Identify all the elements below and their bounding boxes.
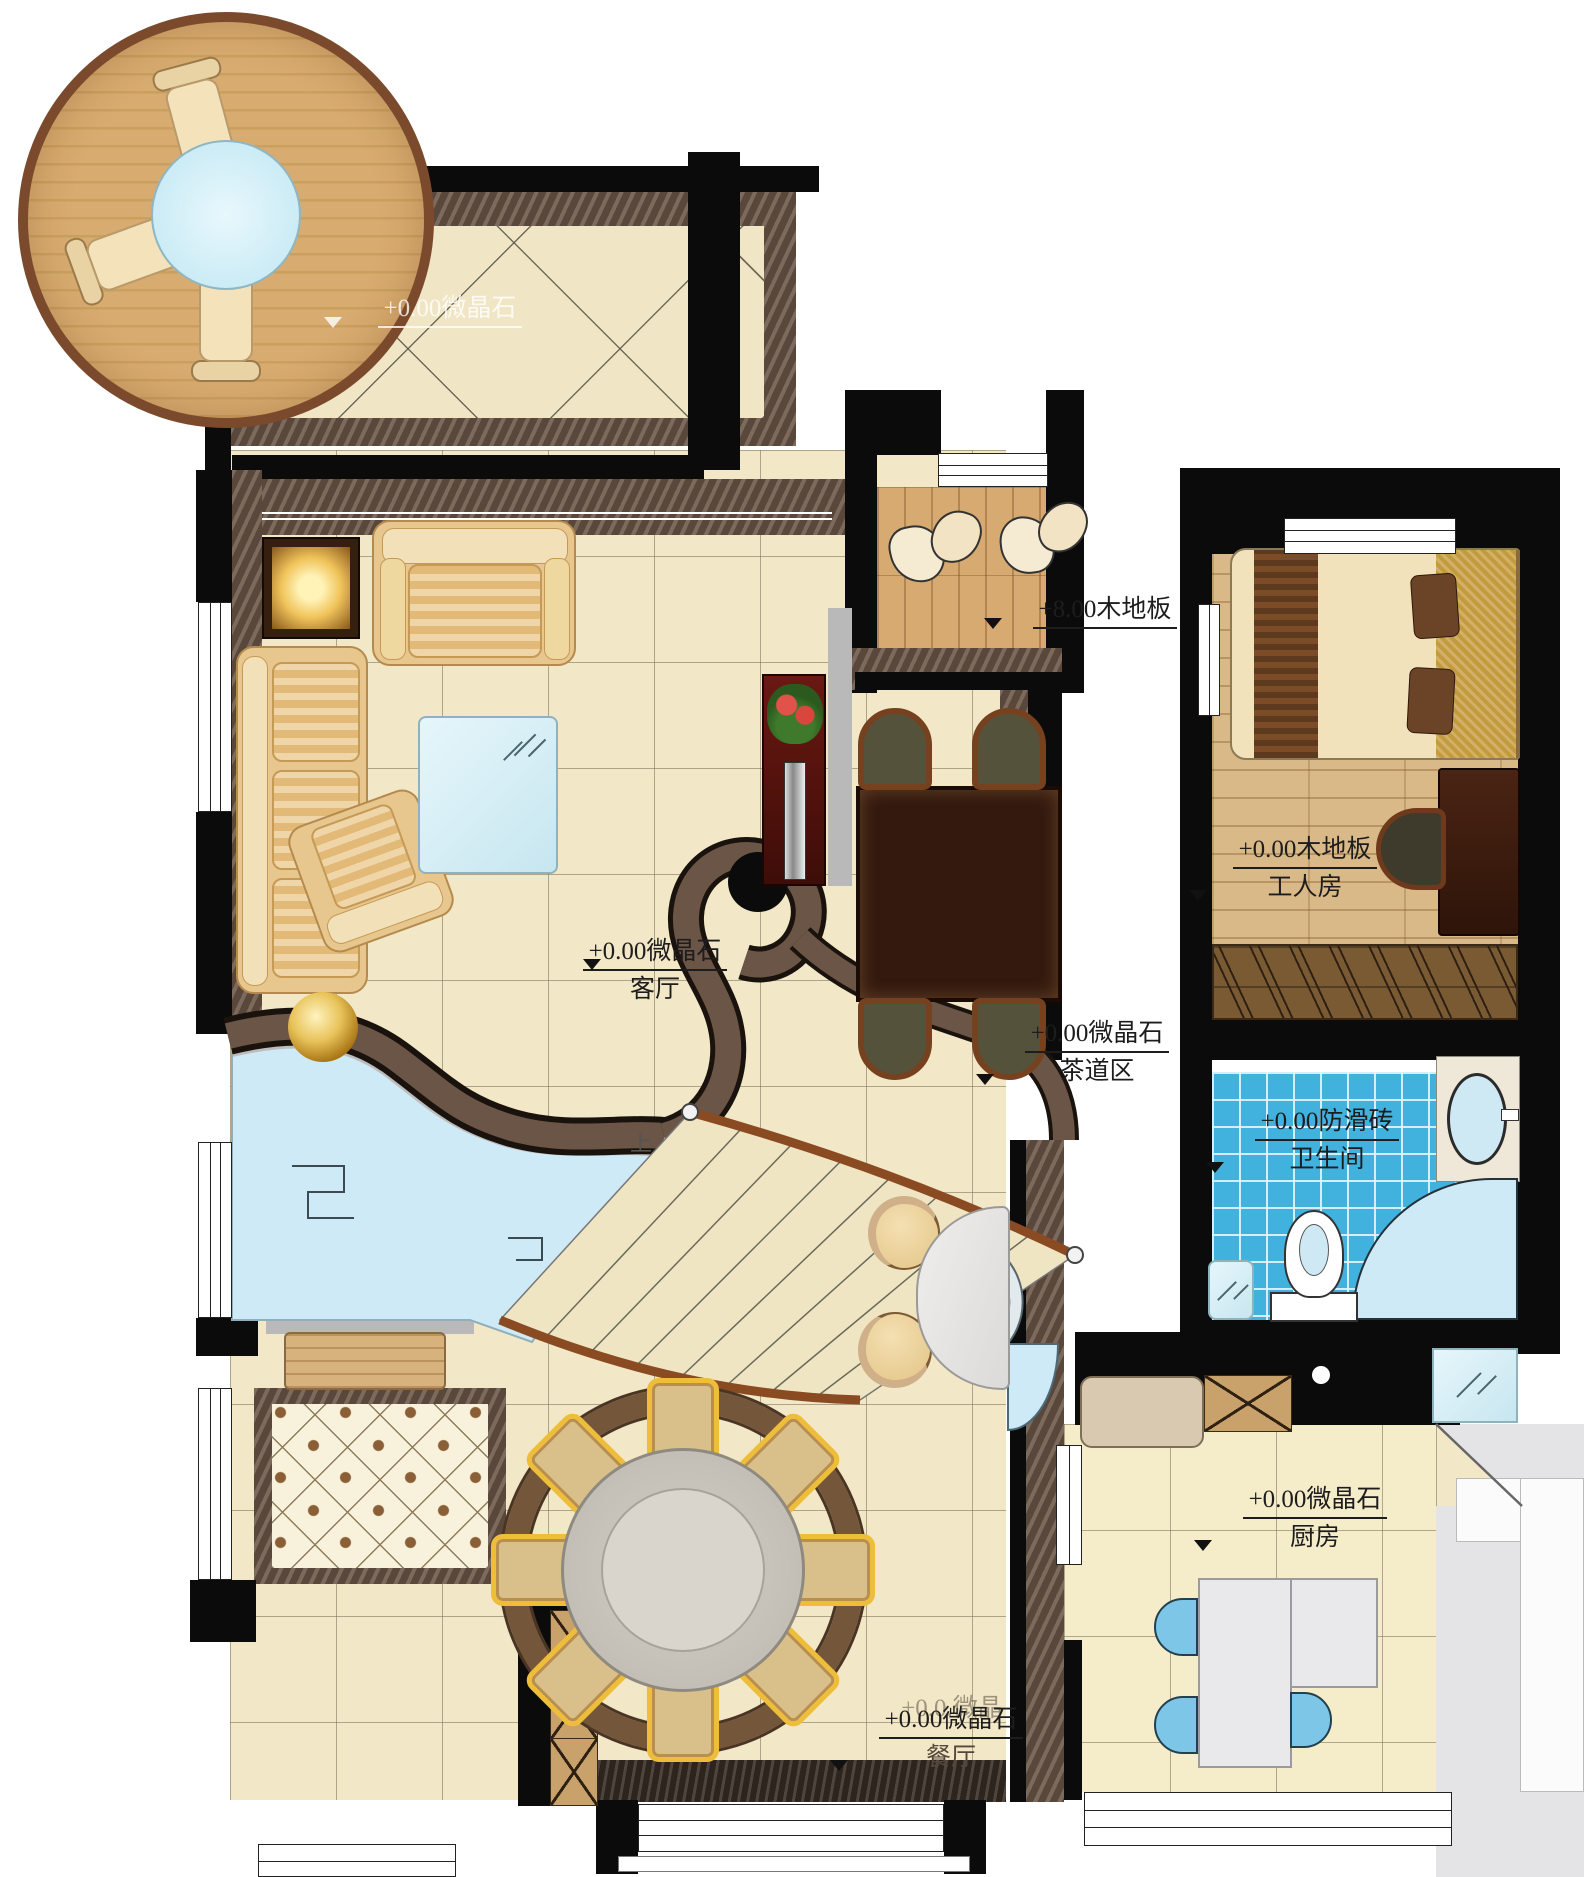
- tv-cabinet: [762, 674, 826, 886]
- tea-label: +0.00微晶石 茶道区: [992, 1020, 1202, 1085]
- tea-level-text: +0.00微晶石: [1025, 1020, 1170, 1053]
- porch-left-window: [198, 1388, 232, 1580]
- level-mark-icon: [324, 317, 342, 337]
- lazy-susan: [601, 1488, 765, 1652]
- faucet-icon: [1501, 1109, 1519, 1121]
- dining-bay-sill: [618, 1856, 970, 1872]
- kitchen-level-text: +0.00微晶石: [1243, 1486, 1388, 1519]
- sofa-cushion: [272, 662, 360, 762]
- bed-headboard: [1516, 550, 1520, 758]
- flower-decor-icon: [767, 684, 823, 744]
- loveseat-arm-left: [380, 558, 406, 660]
- loveseat-cushion: [408, 564, 542, 658]
- dining-label: +0.00微晶石 餐厅: [846, 1706, 1056, 1771]
- level-mark-icon: [984, 618, 1002, 638]
- newel-post: [1067, 1247, 1083, 1263]
- toilet: [1268, 1210, 1360, 1322]
- worker-room-name: 工人房: [1205, 869, 1405, 902]
- tea-room-name: 茶道区: [992, 1053, 1202, 1086]
- tea-chair: [858, 998, 932, 1080]
- level-mark-icon: [830, 1760, 848, 1780]
- dining-bay-window: [638, 1804, 944, 1852]
- floor-plan: +0.00微晶石 +0.00微晶石 客厅: [0, 0, 1584, 1877]
- tea-chair: [858, 708, 932, 790]
- level-mark-icon: [1194, 1540, 1212, 1560]
- worker-desk: [1438, 768, 1520, 936]
- coffee-table: [418, 716, 558, 874]
- loveseat-back: [382, 528, 568, 564]
- worker-top-window: [1284, 518, 1456, 554]
- porch-bench: [284, 1332, 446, 1390]
- bed-pillow: [1410, 572, 1460, 639]
- bath-label: +0.00防滑砖 卫生间: [1222, 1108, 1432, 1173]
- worker-level-text: +0.00木地板: [1233, 836, 1378, 869]
- living-left-window: [198, 602, 232, 812]
- lamp-glow-icon: [272, 547, 350, 629]
- tea-chair: [972, 708, 1046, 790]
- bed-runner: [1254, 550, 1318, 758]
- bath-room-name: 卫生间: [1222, 1141, 1432, 1174]
- wardrobe: [1212, 944, 1518, 1020]
- tea-table: [856, 786, 1062, 1002]
- entry-top-window: [938, 453, 1048, 487]
- living-label: +0.00微晶石 客厅: [555, 938, 755, 1003]
- divider-door-gap: [1056, 1445, 1082, 1565]
- lamp-panel: [262, 537, 360, 639]
- entry-glass-quarter: [1008, 1344, 1058, 1430]
- kitchen-room-name: 厨房: [1210, 1519, 1420, 1552]
- pond-left-window: [198, 1142, 232, 1318]
- level-mark-icon: [976, 1074, 994, 1094]
- entry-level-text: +8.00木地板: [1033, 596, 1178, 629]
- bath-vanity: [1436, 1056, 1520, 1182]
- newel-post: [682, 1104, 698, 1120]
- gold-sphere-lamp: [288, 992, 358, 1062]
- terrace-label: +0.00微晶石: [340, 295, 560, 328]
- single-bed: [1230, 548, 1520, 760]
- level-mark-icon: [1189, 890, 1207, 910]
- toilet-bowl-inner: [1299, 1224, 1329, 1276]
- dining-room-name: 餐厅: [846, 1739, 1056, 1772]
- toilet-bowl: [1284, 1210, 1344, 1298]
- loveseat-arm-right: [544, 558, 570, 660]
- stair-up-label: 上: [630, 1126, 652, 1158]
- worker-label: +0.00木地板 工人房: [1205, 836, 1405, 901]
- tv-wall-strip: [828, 608, 852, 886]
- bath-glass-panel: [1208, 1260, 1254, 1320]
- living-level-text: +0.00微晶石: [583, 938, 728, 971]
- bath-level-text: +0.00防滑砖: [1255, 1108, 1400, 1141]
- kitchen-diagonal: [1436, 1424, 1522, 1506]
- sofa-back: [242, 656, 268, 986]
- kitchen-bottom-window: [1084, 1792, 1452, 1846]
- porch-bottom-window: [258, 1844, 456, 1877]
- loveseat-sofa: [372, 520, 576, 666]
- kitchen-label: +0.00微晶石 厨房: [1210, 1486, 1420, 1551]
- terrace-level-text: +0.00微晶石: [378, 295, 523, 328]
- sink-icon: [1447, 1073, 1507, 1165]
- dining-level-text: +0.00微晶石: [879, 1706, 1024, 1739]
- kitchen-table-L-vert: [1198, 1578, 1292, 1768]
- level-mark-icon: [1206, 1162, 1224, 1182]
- kitchen-table-L-horiz: [1290, 1578, 1378, 1688]
- bed-pillow: [1406, 667, 1455, 735]
- entry-label: +8.00木地板: [1000, 596, 1210, 629]
- level-mark-icon: [583, 959, 601, 979]
- tv-unit-icon: [784, 762, 806, 880]
